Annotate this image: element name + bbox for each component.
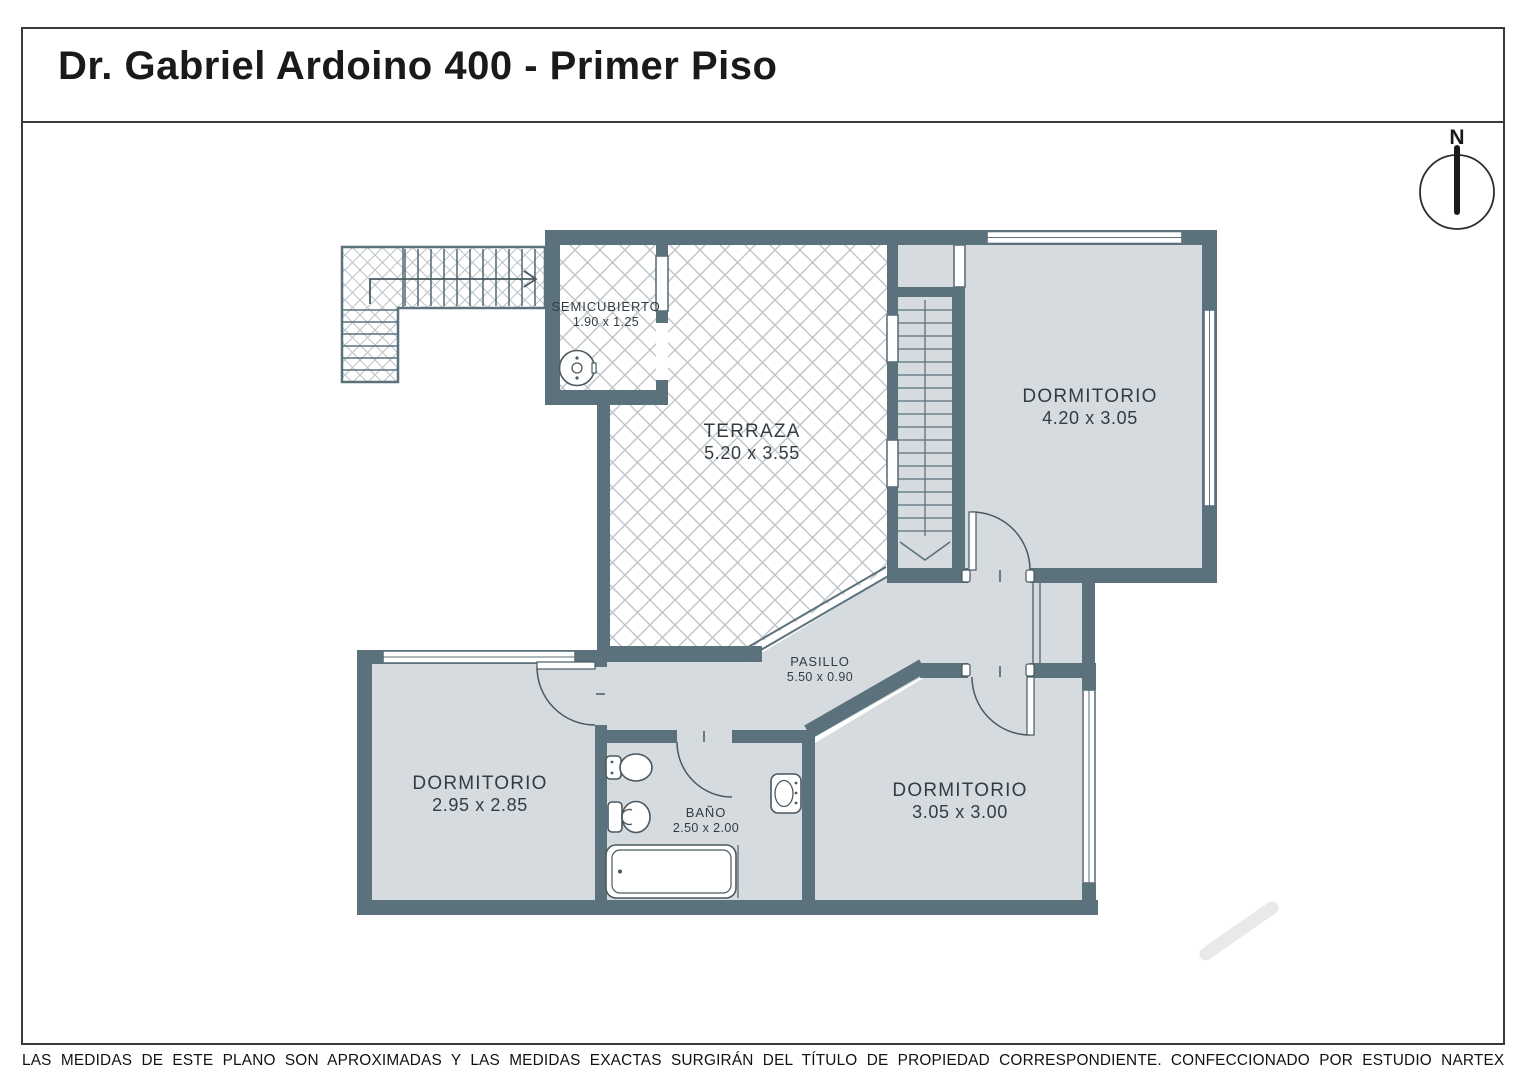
bathtub-fixture	[606, 845, 738, 898]
door-leaf-dormitorio-sureste	[1027, 677, 1034, 735]
window-dormitorio-sureste-right	[1083, 690, 1095, 883]
dormitorio-suroeste-label: DORMITORIO	[412, 773, 547, 794]
stair-landing-floor	[898, 245, 954, 287]
north-compass-icon: N	[1420, 126, 1494, 229]
footer-disclaimer: LAS MEDIDAS DE ESTE PLANO SON APROXIMADA…	[22, 1052, 1162, 1070]
window-stair-lower	[887, 440, 898, 487]
watermark-stroke	[1206, 908, 1272, 954]
footer-credit: CONFECCIONADO POR ESTUDIO NARTEX	[1171, 1052, 1504, 1070]
window-dormitorio-noreste-right	[1204, 310, 1215, 506]
pasillo-label: PASILLO	[790, 654, 850, 669]
semicubierto-dims: 1.90 x 1.25	[573, 315, 639, 329]
compass-north-label: N	[1449, 126, 1464, 149]
pasillo-dims: 5.50 x 0.90	[787, 670, 853, 684]
dormitorio-noreste-label: DORMITORIO	[1022, 386, 1157, 407]
dormitorio-sureste-dims: 3.05 x 3.00	[912, 802, 1008, 822]
semicubierto-label: SEMICUBIERTO	[551, 299, 660, 314]
terraza-label: TERRAZA	[703, 421, 800, 442]
bidet-fixture	[606, 754, 652, 781]
window-landing-panel	[954, 245, 965, 287]
dormitorio-noreste-dims: 4.20 x 3.05	[1042, 408, 1138, 428]
window-dormitorio-suroeste-top	[383, 651, 575, 663]
laundry-fixture	[560, 351, 597, 386]
window-stair-upper	[887, 315, 898, 362]
terraza-dims: 5.20 x 3.55	[704, 443, 800, 463]
dormitorio-sureste-label: DORMITORIO	[892, 780, 1027, 801]
sink-fixture	[771, 774, 801, 813]
door-leaf-dormitorio-noreste	[969, 512, 976, 570]
bano-label: BAÑO	[686, 805, 726, 820]
floor-plan-canvas: SEMICUBIERTO 1.90 x 1.25 TERRAZA 5.20 x …	[0, 0, 1528, 1080]
door-leaf-dormitorio-suroeste	[537, 662, 595, 669]
window-dormitorio-noreste-top	[987, 232, 1182, 244]
bano-dims: 2.50 x 2.00	[673, 821, 739, 835]
toilet-fixture	[608, 802, 650, 833]
dormitorio-suroeste-dims: 2.95 x 2.85	[432, 795, 528, 815]
